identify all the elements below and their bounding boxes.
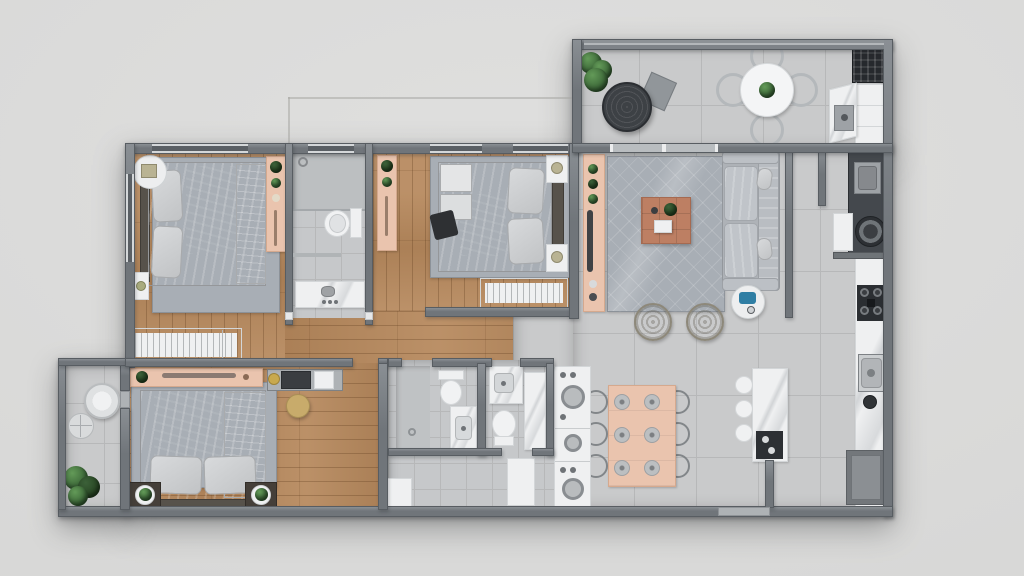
cabinet [386, 478, 412, 508]
wicker-armchair [634, 303, 672, 341]
faucet-icon [322, 300, 326, 304]
faucet-icon [328, 300, 332, 304]
wall-master-left [120, 408, 130, 510]
stool [286, 394, 310, 418]
decor-dot [589, 280, 597, 288]
faucet-icon [867, 369, 875, 377]
oven-knob [560, 372, 566, 378]
desk-groove [274, 210, 277, 246]
sofa-cushion [724, 223, 758, 278]
plant-icon [136, 371, 148, 383]
window-bedroom2 [430, 144, 482, 153]
terrace-glass-railing [584, 40, 884, 49]
decor-dot [589, 293, 597, 301]
wardrobe [128, 328, 242, 362]
refrigerator-top [851, 455, 881, 500]
shower-zone [396, 366, 430, 452]
cooktop-center [867, 299, 875, 307]
oven-divider [555, 461, 590, 462]
wall-baths-top [388, 358, 402, 367]
microwave-window [564, 434, 582, 452]
burner-icon [860, 306, 869, 315]
faucet-icon [461, 426, 466, 431]
wall-small-balcony-left [58, 358, 66, 510]
floor-plan [0, 0, 1024, 576]
table-lamp-icon [141, 164, 157, 178]
wardrobe [480, 278, 568, 308]
bed-throw [186, 166, 236, 254]
wall-master-right [378, 363, 388, 510]
wardrobe-divider [222, 330, 223, 360]
window-bedroom1-left [126, 174, 134, 262]
oven-window [561, 385, 585, 409]
decor-dot [747, 306, 755, 314]
oven-knob [560, 414, 566, 420]
book-stack [654, 220, 672, 233]
projection-line [288, 97, 574, 99]
table-centerpiece [759, 82, 775, 98]
drain-icon [408, 428, 416, 436]
plant-icon [381, 160, 393, 172]
bed-pillow [507, 167, 545, 215]
projection-line [288, 97, 290, 145]
plant-icon [588, 164, 598, 174]
bar-stool [735, 376, 753, 394]
burner-icon [768, 447, 775, 454]
window-bathroom [308, 144, 354, 153]
plant-icon [270, 161, 282, 173]
plant-icon [588, 194, 598, 204]
bar-stool [735, 400, 753, 418]
wicker-armchair [686, 303, 724, 341]
blue-tray [739, 292, 756, 304]
washing-machine-body [833, 213, 853, 251]
wall-master-top [125, 358, 353, 367]
kettle-icon [268, 373, 280, 385]
shower-glass-divider [293, 253, 341, 257]
place-setting [614, 427, 630, 443]
balcony-side-table [68, 413, 94, 439]
balcony-door [120, 391, 130, 408]
wall-bathroom-right [365, 143, 373, 325]
entrance-door [718, 507, 770, 516]
shower-head-icon [298, 157, 308, 167]
burner-icon [762, 436, 769, 443]
balcony-chair [84, 383, 120, 419]
wall-living-left [569, 143, 579, 319]
shower-panel [524, 372, 546, 450]
laundry-divider [833, 252, 888, 259]
bed-pillow [507, 217, 545, 265]
wall-bathB-right [546, 363, 554, 456]
burner-icon [873, 306, 882, 315]
living-sliding-door [610, 144, 718, 152]
bed-sheet [236, 164, 266, 284]
bathroom-wall-cap [365, 312, 373, 320]
waste-bin [863, 395, 877, 409]
sink-basin [858, 166, 877, 190]
wall-baths-bottom [532, 448, 554, 456]
soundbar [587, 210, 593, 272]
wall-bedroom1-right [285, 143, 293, 325]
plant-icon [68, 486, 88, 506]
wall-bedroom2-bottom [425, 307, 572, 317]
place-setting [644, 394, 660, 410]
plant-icon [255, 488, 268, 501]
counter-dark-top [281, 371, 311, 389]
table-lamp-icon [551, 251, 563, 263]
plant-icon [588, 179, 598, 189]
toilet [492, 410, 516, 438]
plant-icon [584, 68, 608, 92]
shelf-groove [162, 373, 236, 378]
toilet [440, 380, 462, 405]
table-grid [70, 425, 92, 426]
wall-bathA-right [477, 363, 486, 456]
bed-pillow [151, 225, 184, 278]
papasan-chair [602, 82, 652, 132]
wall-laundry-stub [818, 148, 826, 206]
oven-knob [570, 467, 576, 473]
washing-machine-door [855, 216, 886, 247]
plant-icon [382, 177, 392, 187]
toilet-tank [494, 436, 514, 446]
plant-icon [271, 178, 281, 188]
oven-window [562, 478, 584, 500]
bathroom-wall-cap [285, 312, 293, 320]
desk-groove [385, 196, 388, 236]
vanity-sink [321, 286, 335, 297]
bar-stool [735, 424, 753, 442]
table-lamp-icon [551, 162, 563, 174]
place-setting [644, 427, 660, 443]
wall-island-stub [765, 460, 774, 508]
island-cooktop [756, 431, 783, 459]
counter-sink [314, 371, 334, 389]
oven-divider [555, 428, 590, 429]
toilet-tank [438, 370, 464, 380]
place-setting [614, 460, 630, 476]
wall-sofa-back [785, 148, 793, 318]
faucet-icon [334, 300, 338, 304]
decor-dot [272, 194, 280, 202]
throw-pillow [756, 237, 774, 261]
place-setting [644, 460, 660, 476]
oven-knob [570, 372, 576, 378]
kitchen-cabinet [507, 458, 535, 506]
decor-dot [243, 374, 249, 380]
bed-throw [154, 392, 222, 464]
window-bedroom2 [513, 144, 568, 153]
terrace-chair [750, 113, 784, 147]
wall-master-left [120, 363, 130, 391]
faucet-icon [501, 381, 506, 386]
window-bedroom1 [152, 144, 248, 153]
wall-baths-bottom [388, 448, 502, 456]
toilet-seat [329, 214, 346, 233]
faucet-icon [841, 114, 848, 121]
speaker-cone [136, 281, 146, 291]
place-setting [614, 394, 630, 410]
wall-right [883, 39, 893, 517]
plant-icon [664, 203, 677, 216]
sofa-cushion [724, 166, 758, 221]
toilet-tank [350, 208, 362, 238]
wall-terrace-left [572, 39, 582, 153]
plant-icon [139, 488, 152, 501]
folded-blanket [440, 164, 472, 192]
oven-knob [560, 467, 566, 473]
burner-icon [873, 288, 882, 297]
burner-icon [860, 288, 869, 297]
wall-small-balcony-top [58, 358, 130, 366]
table-grid [80, 415, 81, 437]
decor-cup [651, 207, 658, 214]
